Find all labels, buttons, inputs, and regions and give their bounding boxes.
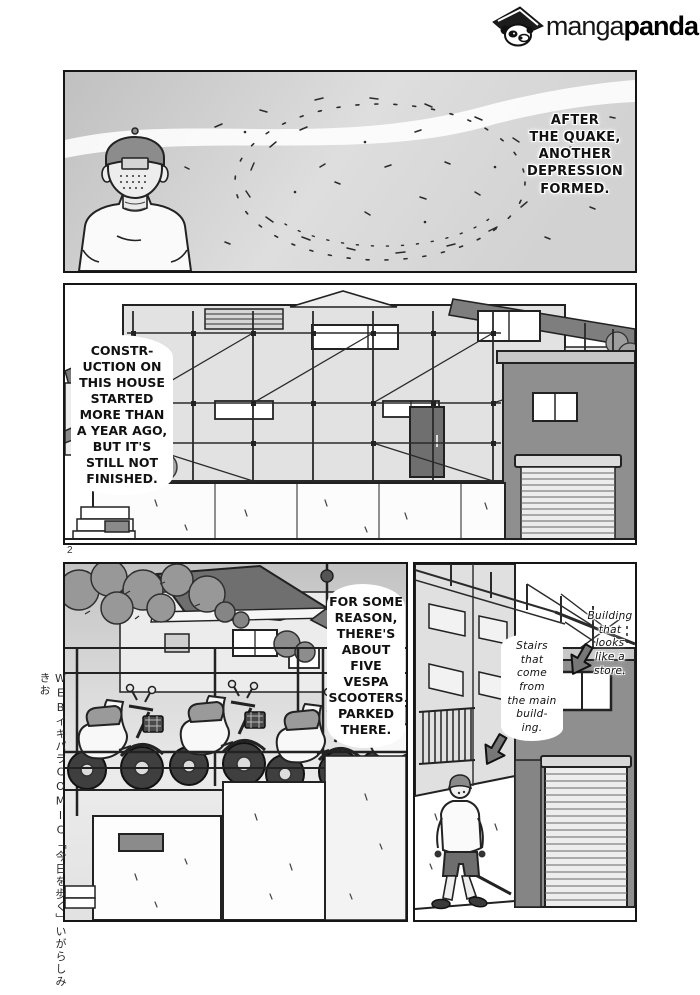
series-credit-vertical: WEBイキパラCOMIC「今日を歩く」いがらしみきお (36, 672, 68, 995)
retaining-wall (93, 483, 505, 539)
panel-4: Stairs that come from the main build- in… (413, 562, 637, 922)
panda-with-hat-icon (491, 5, 545, 47)
manga-page: mangapanda (0, 0, 700, 995)
panel-1-caption: AFTER THE QUAKE, ANOTHER DEPRESSION FORM… (515, 112, 635, 198)
logo-word-panda: panda (623, 11, 698, 41)
panel-4-caption-stairs: Stairs that come from the main build- in… (501, 634, 563, 741)
logo-wordmark: mangapanda (546, 13, 698, 40)
panel-2: CONSTR- UCTION ON THIS HOUSE STARTED MOR… (63, 283, 637, 545)
panel-4-caption-building: Building that looks like a store. (585, 610, 635, 678)
logo-word-manga: manga (546, 11, 624, 41)
panel-2-caption: CONSTR- UCTION ON THIS HOUSE STARTED MOR… (71, 335, 173, 495)
panel-3-caption: FOR SOME REASON, THERE'S ABOUT FIVE VESP… (327, 584, 405, 748)
panel-1: AFTER THE QUAKE, ANOTHER DEPRESSION FORM… (63, 70, 637, 273)
panel-3: FOR SOME REASON, THERE'S ABOUT FIVE VESP… (63, 562, 408, 922)
page-number: 2 (67, 545, 73, 556)
mangapanda-logo[interactable]: mangapanda (491, 5, 698, 47)
